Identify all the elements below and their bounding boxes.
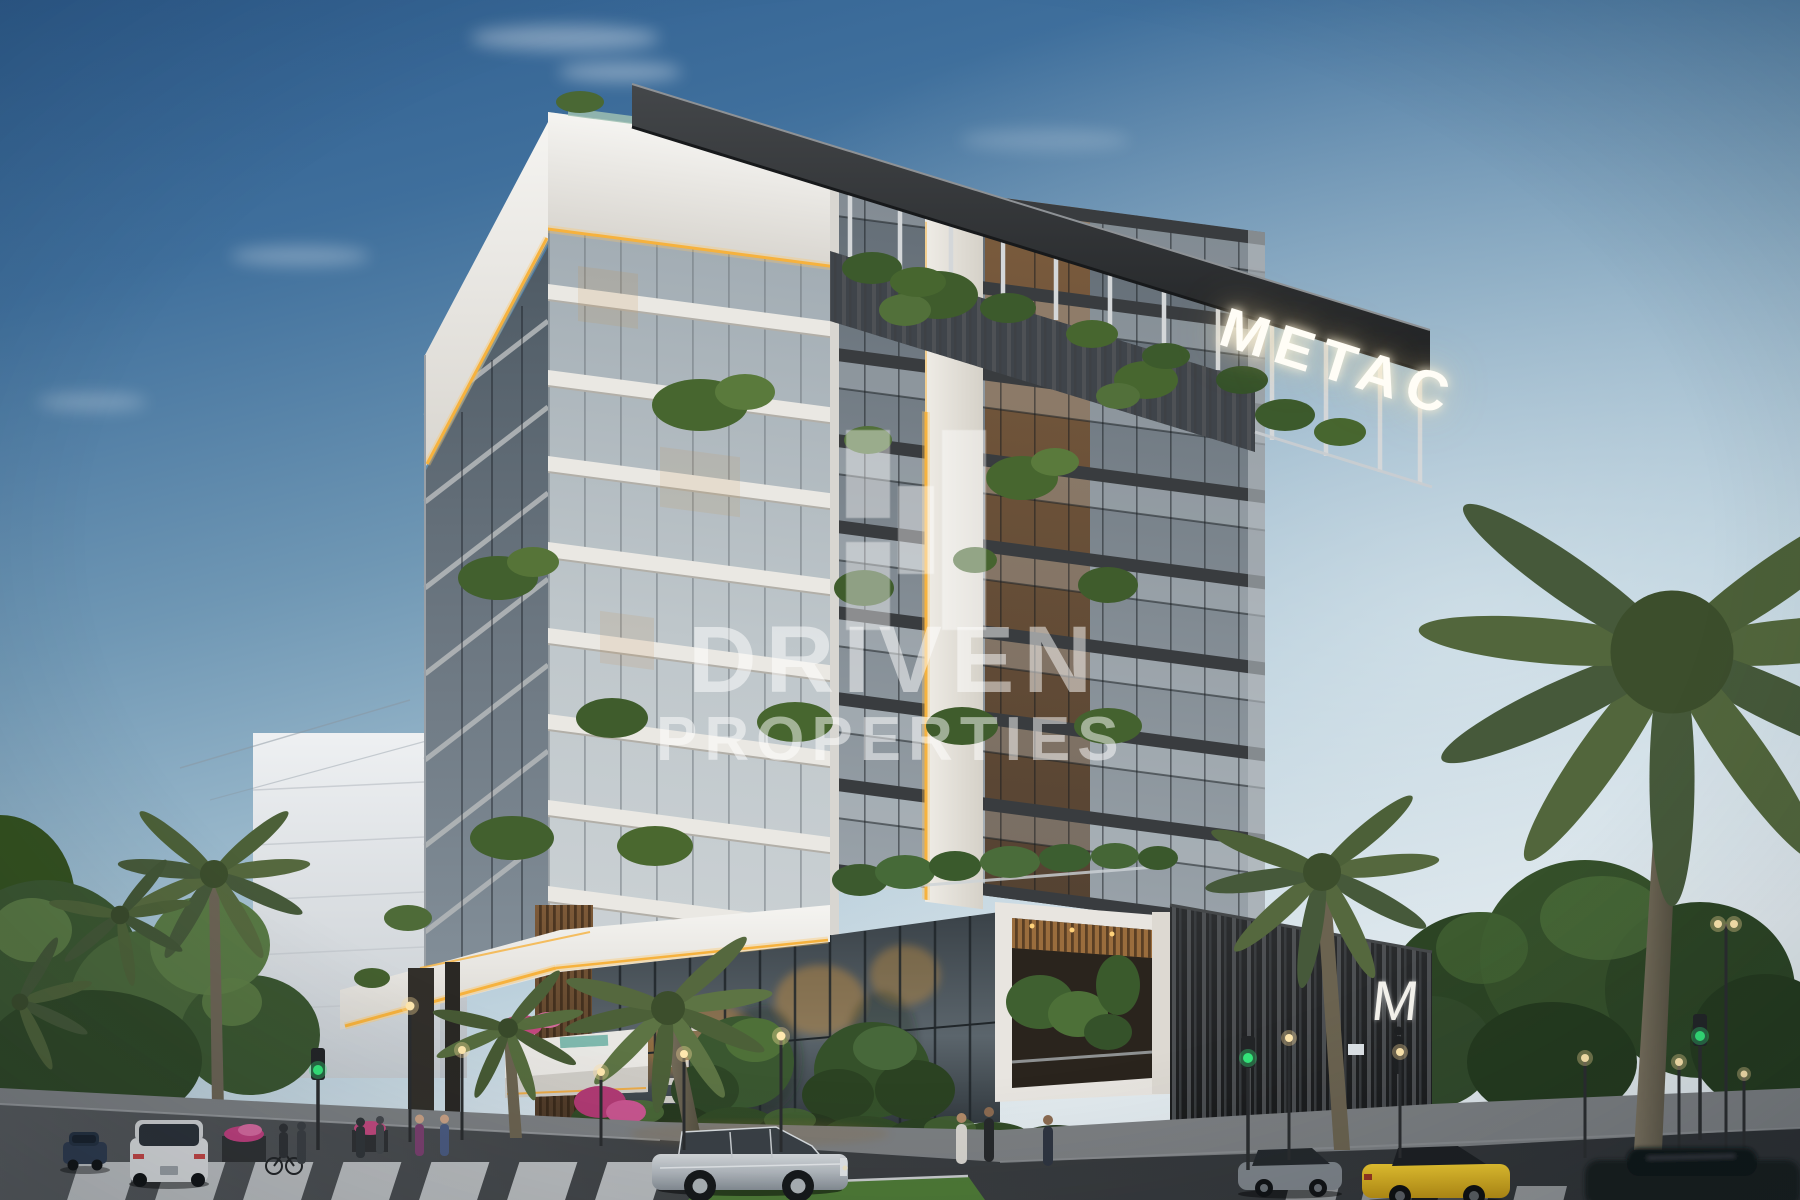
rendering-canvas: METAC M DRIVEN PROPERTIES: [0, 0, 1800, 1200]
vignette: [0, 0, 1800, 1200]
scene-art: [0, 0, 1800, 1200]
